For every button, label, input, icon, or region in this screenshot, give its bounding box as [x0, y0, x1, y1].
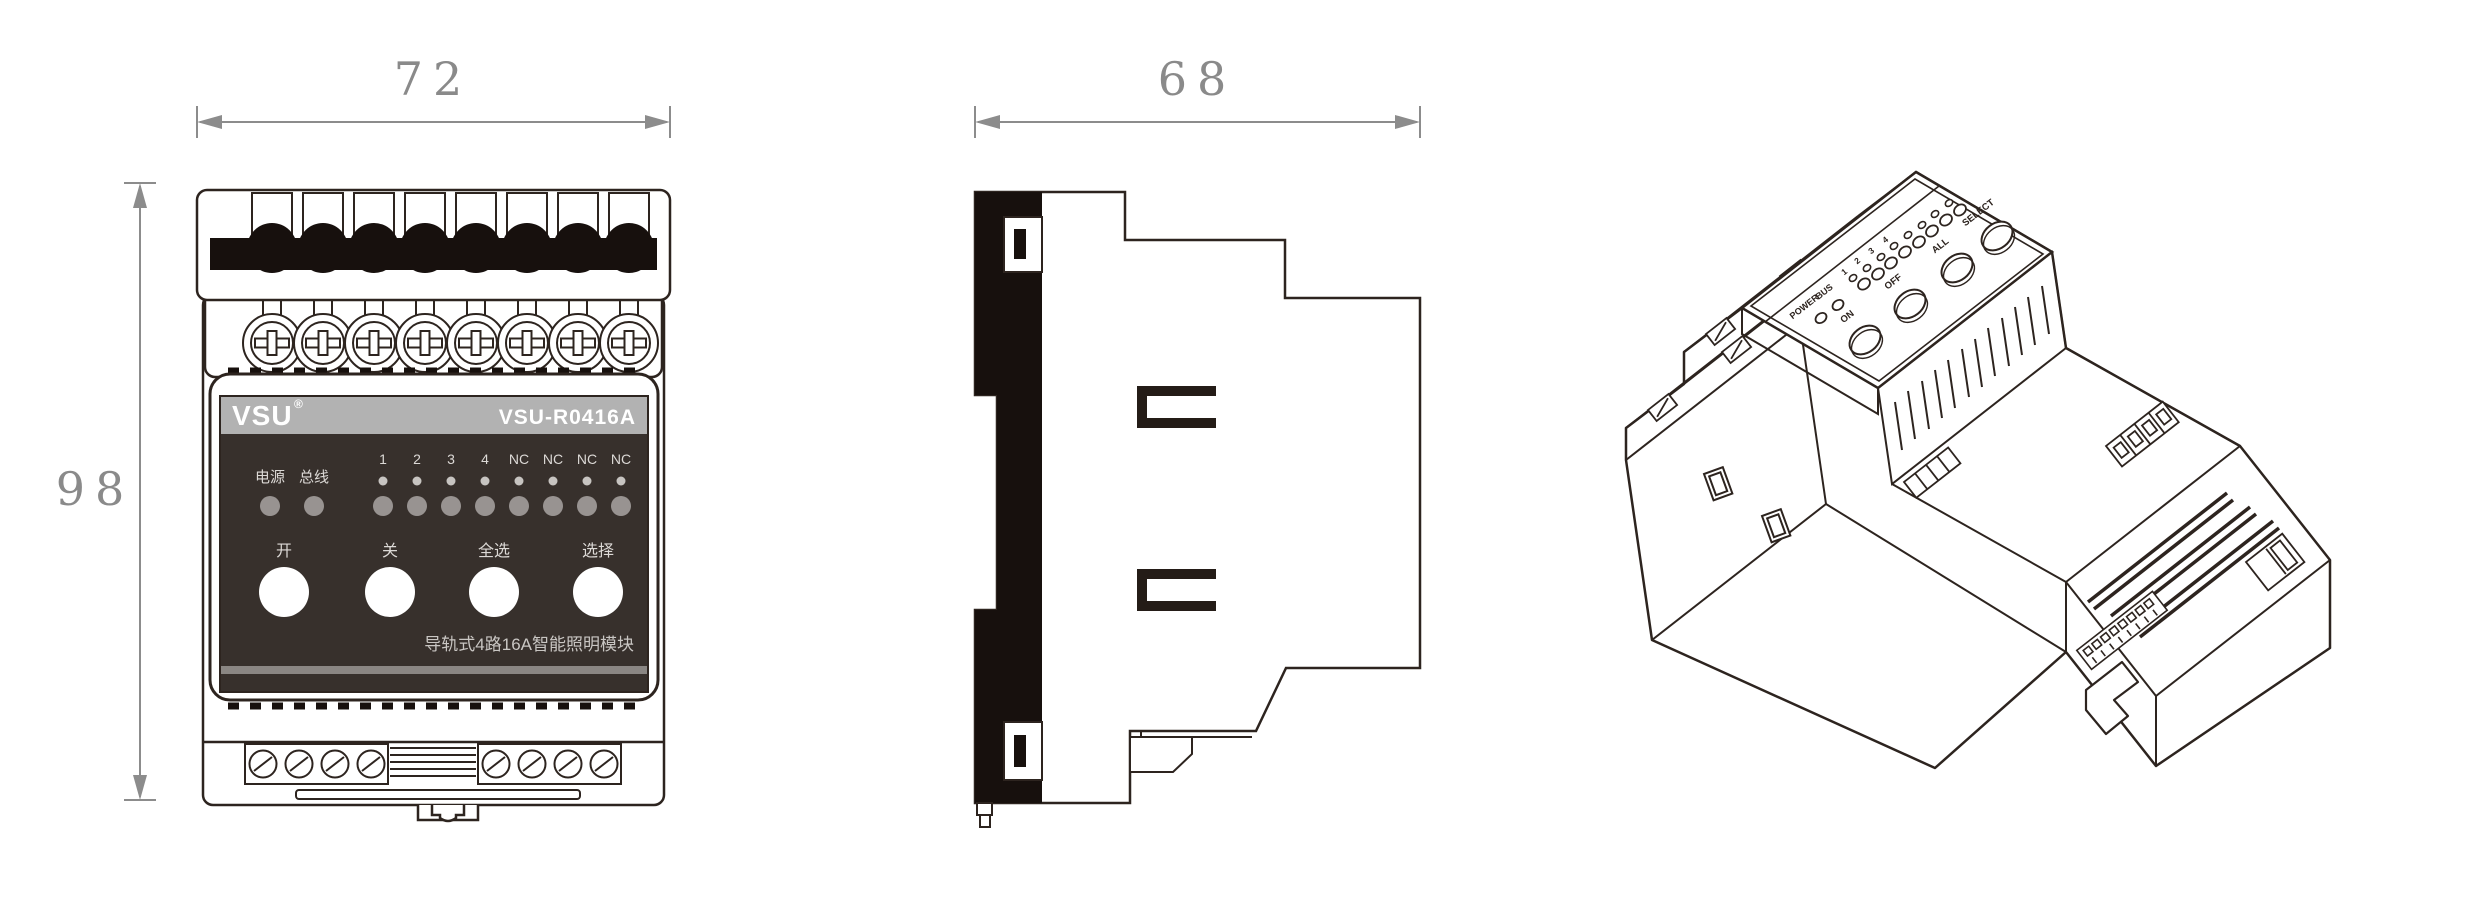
release-pin — [977, 803, 992, 827]
channel-indicator-small — [379, 477, 388, 486]
channel-label: NC — [509, 451, 529, 467]
front-bezel-edge — [975, 192, 1042, 803]
dim-arrowhead — [133, 183, 147, 208]
channel-indicator-small — [481, 477, 490, 486]
bottom-notch — [1004, 722, 1042, 780]
front-panel: VSU ® VSU-R0416A 电源 总线 1 2 3 4 NC NC NC … — [210, 374, 658, 700]
channel-indicator-small — [617, 477, 626, 486]
channel-label: 3 — [447, 451, 455, 467]
din-clip — [418, 805, 478, 821]
technical-drawing: 72 98 68 — [0, 0, 2481, 924]
channel-indicator-small — [549, 477, 558, 486]
select-button — [573, 567, 623, 617]
channel-label: 2 — [413, 451, 421, 467]
dim-depth: 68 — [975, 52, 1420, 138]
off-button-label: 关 — [382, 542, 398, 560]
channel-led — [577, 496, 597, 516]
brand-reg-mark: ® — [294, 397, 303, 411]
dim-height: 98 — [56, 183, 156, 800]
channel-indicator-small — [447, 477, 456, 486]
all-button — [469, 567, 519, 617]
power-led — [260, 496, 280, 516]
select-button-label: 选择 — [582, 542, 614, 560]
channel-led — [373, 496, 393, 516]
product-caption: 导轨式4路16A智能照明模块 — [424, 635, 634, 654]
din-rail-bar — [296, 790, 580, 799]
dim-arrowhead — [1395, 115, 1420, 129]
front-view: VSU ® VSU-R0416A 电源 总线 1 2 3 4 NC NC NC … — [197, 190, 670, 821]
dim-arrowhead — [197, 115, 222, 129]
channel-led — [611, 496, 631, 516]
top-notch — [1004, 217, 1042, 272]
channel-led — [543, 496, 563, 516]
all-button-label: 全选 — [478, 542, 510, 560]
dim-width: 72 — [197, 52, 670, 138]
channel-label: NC — [577, 451, 597, 467]
bus-led-label: 总线 — [299, 469, 329, 486]
channel-indicator-small — [413, 477, 422, 486]
dim-arrowhead — [133, 775, 147, 800]
off-button — [365, 567, 415, 617]
on-button-label: 开 — [276, 543, 292, 560]
channel-label: NC — [611, 451, 631, 467]
channel-label: 1 — [379, 451, 387, 467]
iso-view: POWER BUS 1 2 3 4 — [1626, 172, 2330, 768]
on-button — [259, 567, 309, 617]
brand-logo: VSU — [232, 400, 293, 431]
channel-led — [509, 496, 529, 516]
dim-height-value: 98 — [56, 462, 135, 516]
dim-arrowhead — [645, 115, 670, 129]
channel-led — [407, 496, 427, 516]
dim-width-value: 72 — [394, 52, 473, 106]
channel-indicator-small — [583, 477, 592, 486]
channel-led — [475, 496, 495, 516]
dim-arrowhead — [975, 115, 1000, 129]
channel-label: 4 — [481, 451, 489, 467]
power-led-label: 电源 — [255, 469, 285, 486]
top-wire-terminal-block — [197, 190, 670, 300]
technical-drawing-page: 72 98 68 — [0, 0, 2481, 924]
channel-indicator-small — [515, 477, 524, 486]
channel-label: NC — [543, 451, 563, 467]
model-label: VSU-R0416A — [499, 406, 636, 429]
dim-depth-value: 68 — [1158, 52, 1237, 106]
channel-led — [441, 496, 461, 516]
side-view — [975, 192, 1420, 827]
side-din-clip — [1130, 731, 1252, 772]
bus-led — [304, 496, 324, 516]
busbar-cover — [210, 238, 657, 270]
panel-stripe — [220, 666, 648, 674]
